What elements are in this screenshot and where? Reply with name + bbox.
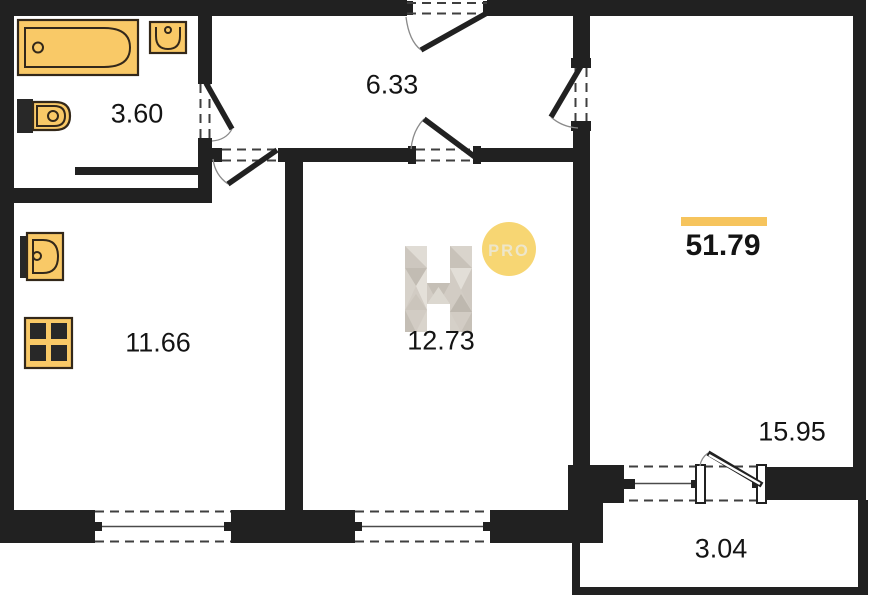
kitchen-sink-icon <box>20 233 63 280</box>
wall-bathroom-right-upper <box>198 16 212 84</box>
pro-badge-text: PRO <box>488 242 530 260</box>
watermark-h-logo <box>405 246 472 332</box>
kitchen-door <box>213 150 278 185</box>
bedroom-window <box>345 510 500 543</box>
watermark-pro-badge: PRO <box>482 222 536 276</box>
bathtub-icon <box>18 20 138 75</box>
stove-icon <box>25 318 72 368</box>
wall-balcony-connector <box>568 503 603 513</box>
wall-kitchen-divider <box>285 148 303 510</box>
floor-plan: PRO 3.60 6.33 11.66 12.73 15.95 3.04 51.… <box>0 0 873 600</box>
wall-bottom-2 <box>242 510 345 543</box>
wall-mid-upper <box>573 16 590 65</box>
total-area-underline <box>681 217 767 226</box>
total-area-label: 51.79 <box>685 229 760 263</box>
wall-left <box>0 0 14 543</box>
wall-bathroom-bottom <box>14 188 212 203</box>
area-label-balcony: 3.04 <box>695 534 748 565</box>
wall-balcony-left-block <box>568 465 624 503</box>
floor-plan-canvas: PRO <box>0 0 873 600</box>
kitchen-window <box>85 510 242 543</box>
wall-balcony-parapet-bottom <box>572 587 868 595</box>
wall-top-right <box>487 0 866 16</box>
bathroom-sink-icon <box>150 22 186 53</box>
toilet-icon <box>17 99 70 133</box>
wall-mid-main <box>573 128 590 465</box>
area-label-bathroom: 3.60 <box>111 99 164 130</box>
area-label-kitchen: 11.66 <box>125 328 191 359</box>
balcony-window-door-unit <box>624 453 766 503</box>
wall-bottom-3 <box>500 510 603 543</box>
wall-right <box>853 0 866 500</box>
wall-top-left <box>0 0 407 16</box>
area-label-bedroom: 12.73 <box>407 326 475 357</box>
living-room-door <box>551 66 587 128</box>
wall-bottom-1 <box>14 510 85 543</box>
wall-bathroom-inner-thin <box>75 167 212 175</box>
watermark: PRO <box>405 222 536 332</box>
wall-balcony-parapet-right <box>858 500 868 595</box>
wall-mid-door-jamb-bottom <box>571 121 591 131</box>
area-label-living-room: 15.95 <box>758 417 826 448</box>
wall-balcony-right-block <box>767 467 853 500</box>
windows <box>85 453 766 543</box>
bathroom-door <box>201 83 233 141</box>
area-label-hallway: 6.33 <box>366 70 419 101</box>
bedroom-door <box>411 119 475 161</box>
entrance-door <box>406 3 487 50</box>
wall-bedroom-door-jamb-left <box>408 146 416 164</box>
